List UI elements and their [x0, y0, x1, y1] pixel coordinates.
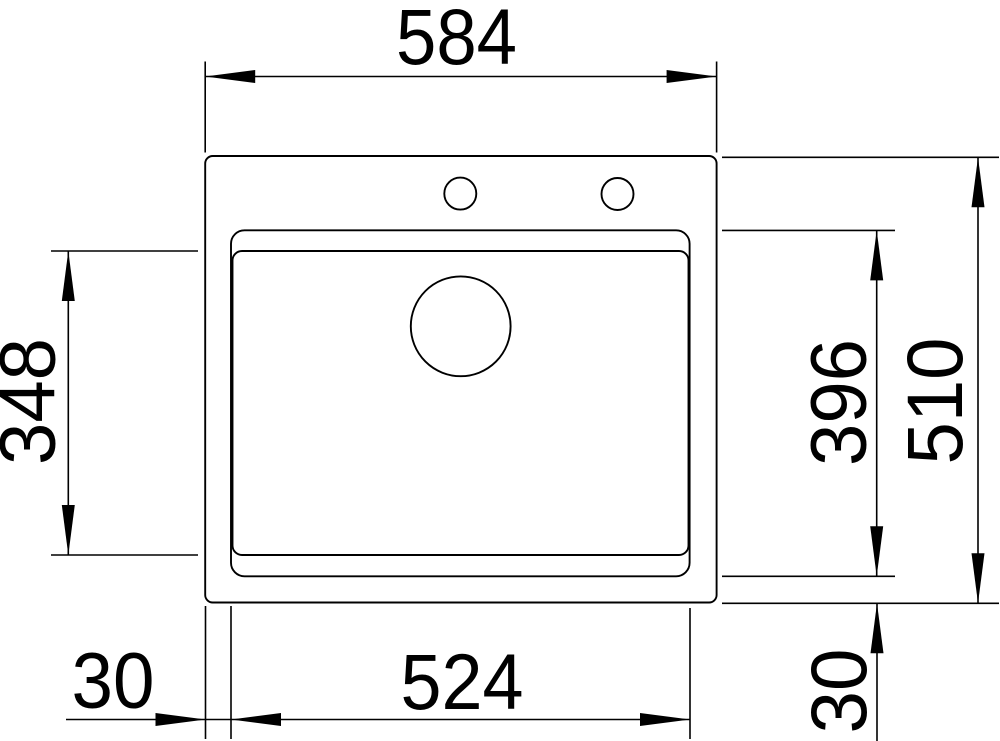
svg-text:396: 396 — [794, 339, 883, 466]
svg-text:510: 510 — [890, 338, 979, 465]
svg-text:30: 30 — [72, 636, 155, 725]
svg-text:348: 348 — [0, 338, 72, 465]
svg-text:524: 524 — [401, 637, 524, 726]
svg-text:584: 584 — [396, 0, 517, 81]
svg-text:30: 30 — [794, 649, 883, 734]
